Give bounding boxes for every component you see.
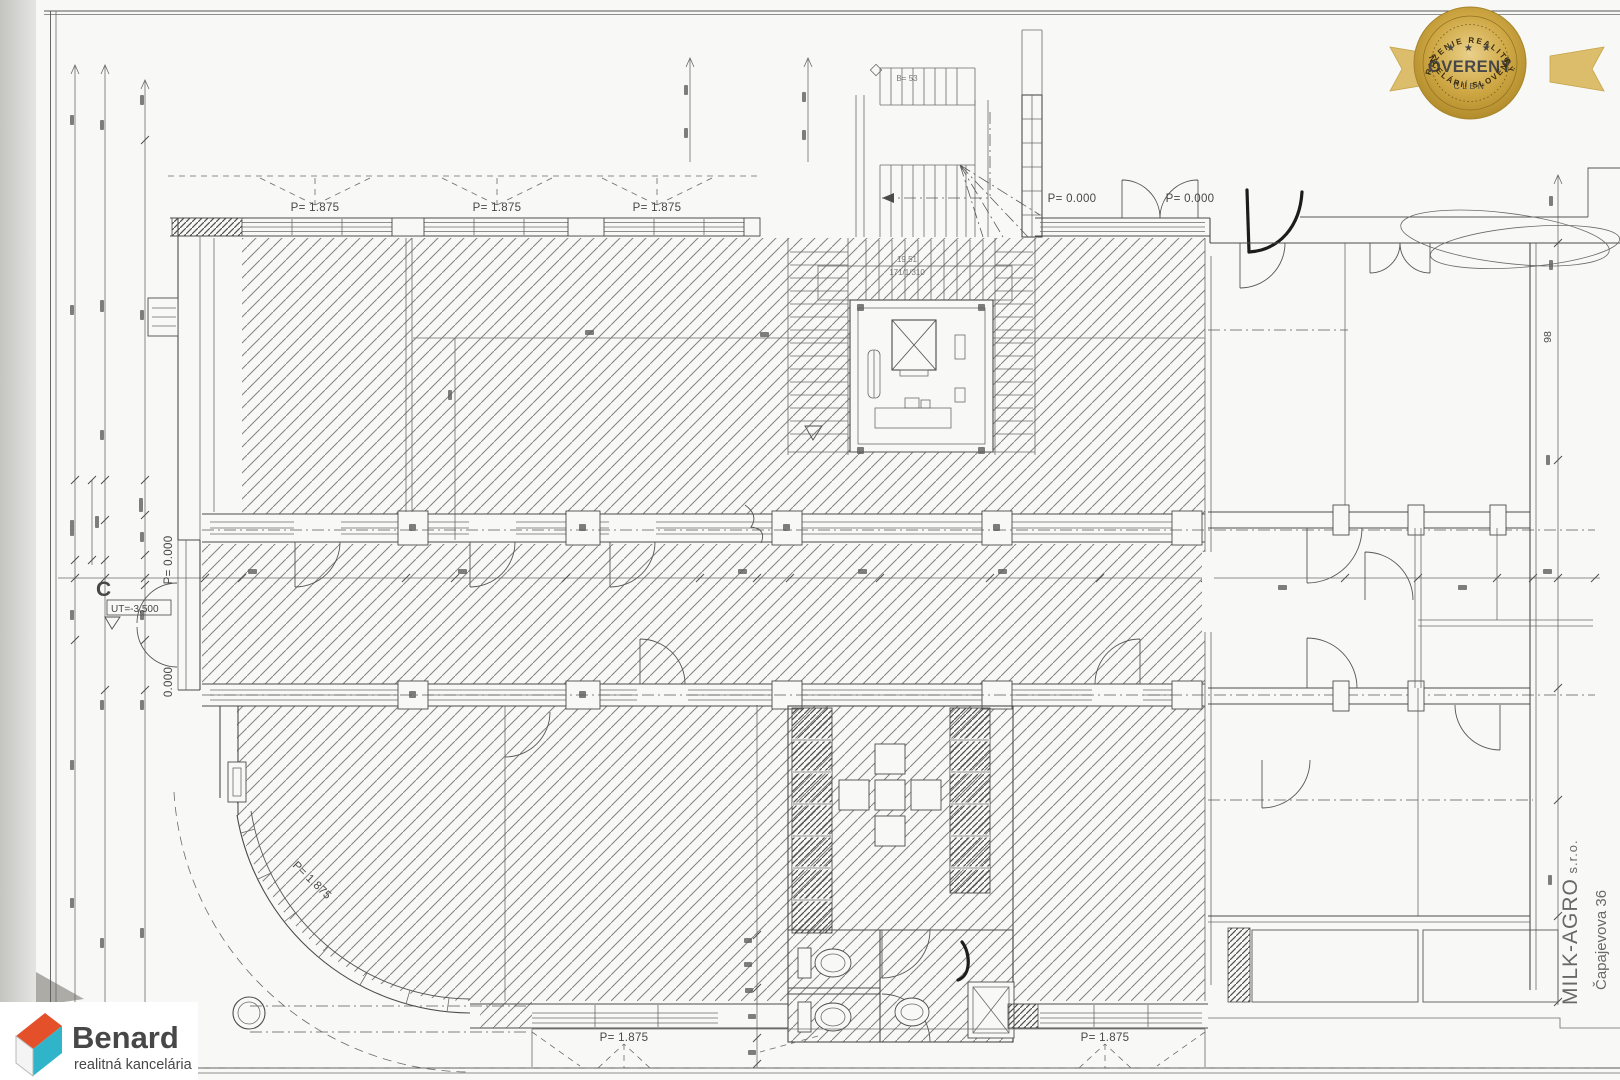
axis-dim-label: 98 [1542,331,1554,343]
parapet-label: P= 1.875 [291,202,340,214]
floor-level-label: 0.000 [163,667,175,697]
company-suffix: s.r.o. [1565,839,1580,878]
parapet-label: P= 1.875 [1081,1032,1130,1044]
floor-level-label: P= 0.000 [163,536,175,585]
scanned-floor-plan-page: P= 1.875 P= 1.875 P= 1.875 P= 0.000 P= 0… [0,0,1620,1080]
section-marker: C [96,578,111,601]
parapet-label: P= 1.875 [473,202,522,214]
agency-logo: Benard realitná kancelária [0,1002,198,1080]
stair-dim-label: 19,51 [897,255,918,264]
sink-fixture [895,998,929,1026]
terrain-level-label: UT=-3,500 [111,604,159,615]
toilet-fixture [798,1002,851,1032]
shaft-x-box [968,982,1014,1038]
hatched-floor-areas [202,238,1205,1042]
company-name: MILK-AGRO [1559,878,1582,1005]
toilet-fixture [798,948,851,978]
stair-formula-label: 171/1/310 [889,268,925,277]
parapet-label: P= 1.875 [600,1032,649,1044]
floor-plan-drawing: P= 1.875 P= 1.875 P= 1.875 P= 0.000 P= 0… [0,0,1620,1080]
parapet-label: P= 1.875 [633,202,682,214]
logo-tagline: realitná kancelária [74,1057,193,1073]
company-address: Čapajevova 36 [1593,890,1610,990]
logo-name: Benard [72,1020,179,1055]
badge-stars: ★ ★ ★ [1446,43,1493,54]
stair-top-note: B= 53 [896,74,918,83]
floor-level-label: P= 0.000 [1166,193,1215,205]
floor-level-label: P= 0.000 [1048,193,1097,205]
